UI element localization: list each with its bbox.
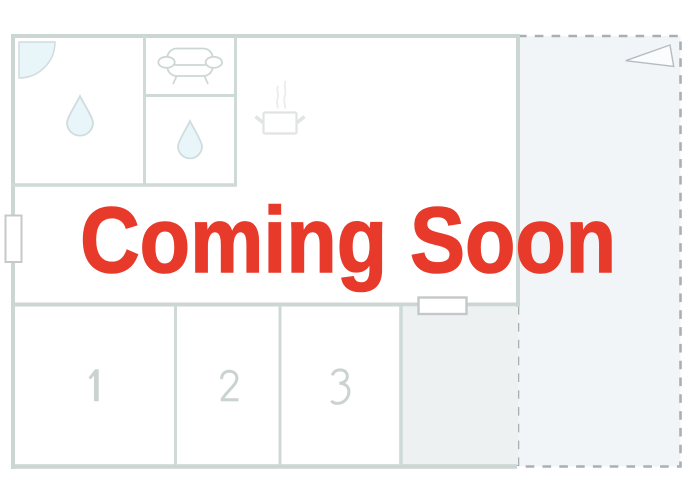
svg-text:Coming Soon: Coming Soon xyxy=(80,187,616,292)
